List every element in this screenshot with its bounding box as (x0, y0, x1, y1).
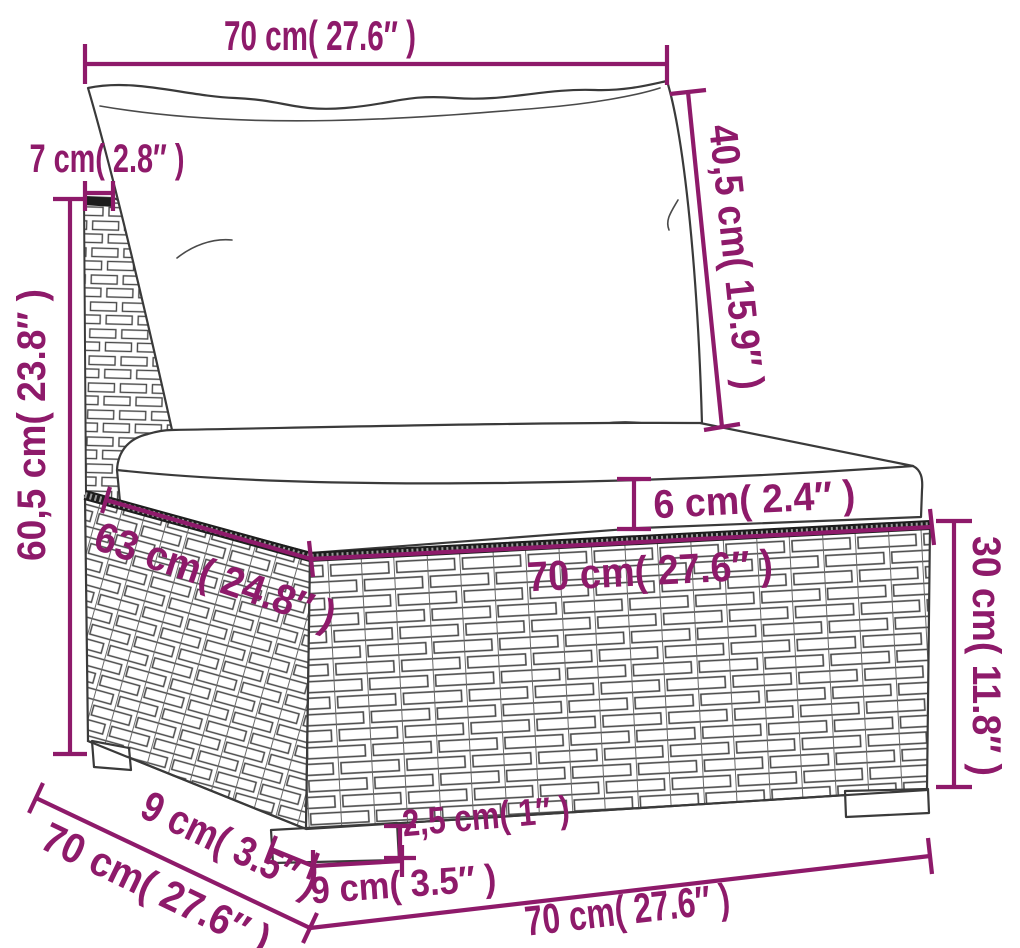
dim-back-cushion-width-label: 70 cm( 27.6″ ) (224, 12, 416, 59)
product-dimension-diagram: 70 cm( 27.6″ ) 7 cm( 2.8″ ) 40,5 cm( 15.… (0, 0, 1020, 948)
dim-base-height: 30 cm( 11.8″ ) (936, 521, 1008, 787)
dim-total-height-label: 60,5 cm( 23.8″ ) (10, 289, 54, 561)
dim-back-cushion-width: 70 cm( 27.6″ ) (85, 12, 667, 85)
dim-back-cushion-height-label: 40,5 cm( 15.9″ ) (700, 122, 772, 391)
diagram-canvas: 70 cm( 27.6″ ) 7 cm( 2.8″ ) 40,5 cm( 15.… (0, 0, 1020, 948)
dim-total-height: 60,5 cm( 23.8″ ) (10, 199, 87, 754)
dim-total-width-label: 70 cm( 27.6″ ) (522, 874, 732, 944)
dim-backrest-thickness-label: 7 cm( 2.8″ ) (30, 137, 185, 181)
back-cushion (88, 81, 702, 434)
dim-base-height-label: 30 cm( 11.8″ ) (964, 536, 1008, 776)
